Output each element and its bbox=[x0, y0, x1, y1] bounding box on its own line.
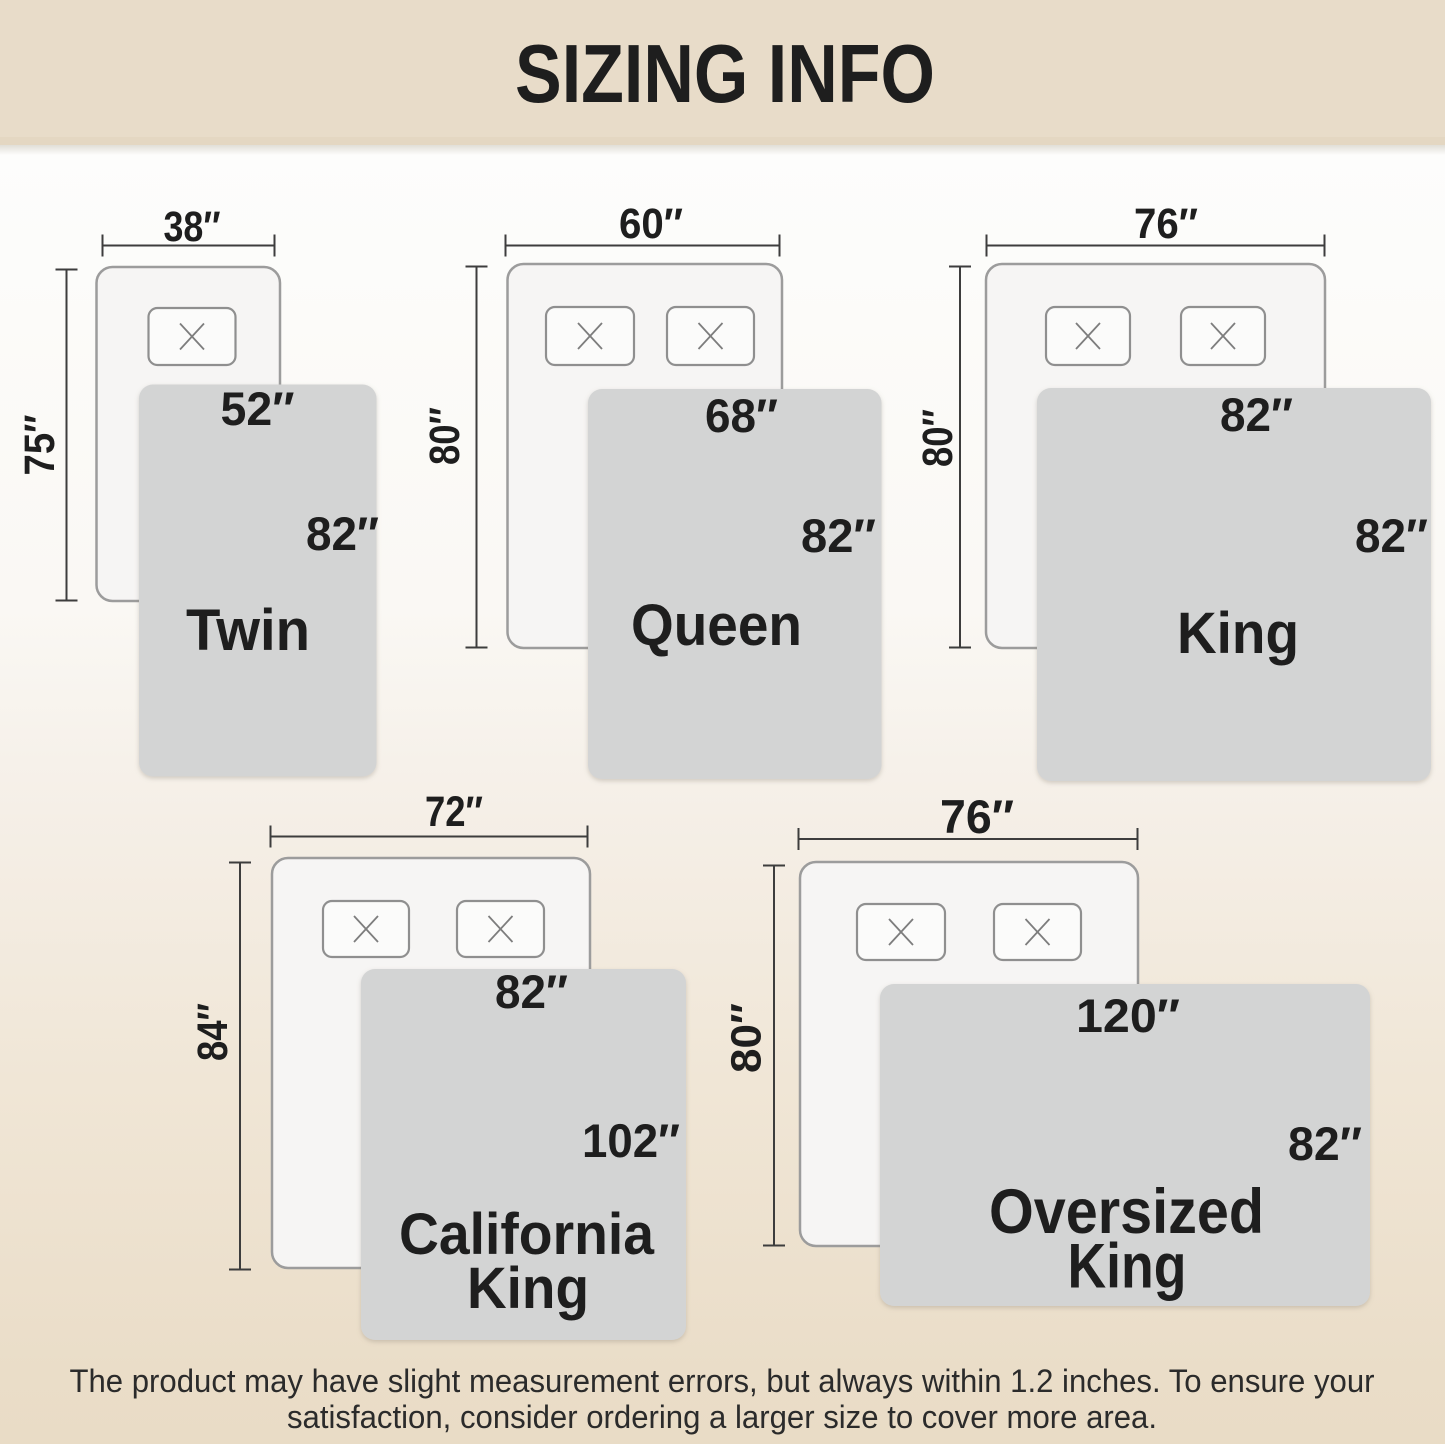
svg-text:80″: 80″ bbox=[421, 407, 469, 465]
svg-text:84″: 84″ bbox=[189, 1003, 237, 1061]
svg-text:82″: 82″ bbox=[1220, 388, 1293, 441]
svg-text:52″: 52″ bbox=[221, 382, 295, 435]
svg-text:82″: 82″ bbox=[801, 509, 876, 562]
svg-text:80″: 80″ bbox=[723, 1003, 771, 1073]
svg-text:Queen: Queen bbox=[631, 593, 802, 658]
svg-text:38″: 38″ bbox=[164, 203, 221, 251]
svg-text:King: King bbox=[1068, 1232, 1187, 1302]
svg-text:72″: 72″ bbox=[425, 788, 483, 836]
svg-text:King: King bbox=[1177, 601, 1299, 666]
svg-text:120″: 120″ bbox=[1076, 989, 1180, 1042]
svg-text:The product may have slight me: The product may have slight measurement … bbox=[70, 1363, 1375, 1399]
svg-text:Twin: Twin bbox=[186, 598, 310, 663]
svg-text:82″: 82″ bbox=[495, 965, 568, 1018]
svg-text:75″: 75″ bbox=[16, 415, 64, 476]
svg-text:102″: 102″ bbox=[582, 1114, 680, 1167]
svg-text:80″: 80″ bbox=[914, 409, 962, 467]
svg-text:King: King bbox=[467, 1256, 589, 1321]
svg-text:82″: 82″ bbox=[306, 507, 379, 560]
svg-text:82″: 82″ bbox=[1288, 1117, 1362, 1170]
svg-text:satisfaction, consider orderin: satisfaction, consider ordering a larger… bbox=[287, 1399, 1157, 1435]
svg-text:68″: 68″ bbox=[705, 389, 778, 442]
svg-text:SIZING INFO: SIZING INFO bbox=[515, 27, 935, 120]
svg-text:76″: 76″ bbox=[940, 790, 1014, 843]
svg-text:76″: 76″ bbox=[1134, 200, 1198, 248]
svg-text:82″: 82″ bbox=[1355, 509, 1428, 562]
svg-text:60″: 60″ bbox=[619, 200, 683, 248]
